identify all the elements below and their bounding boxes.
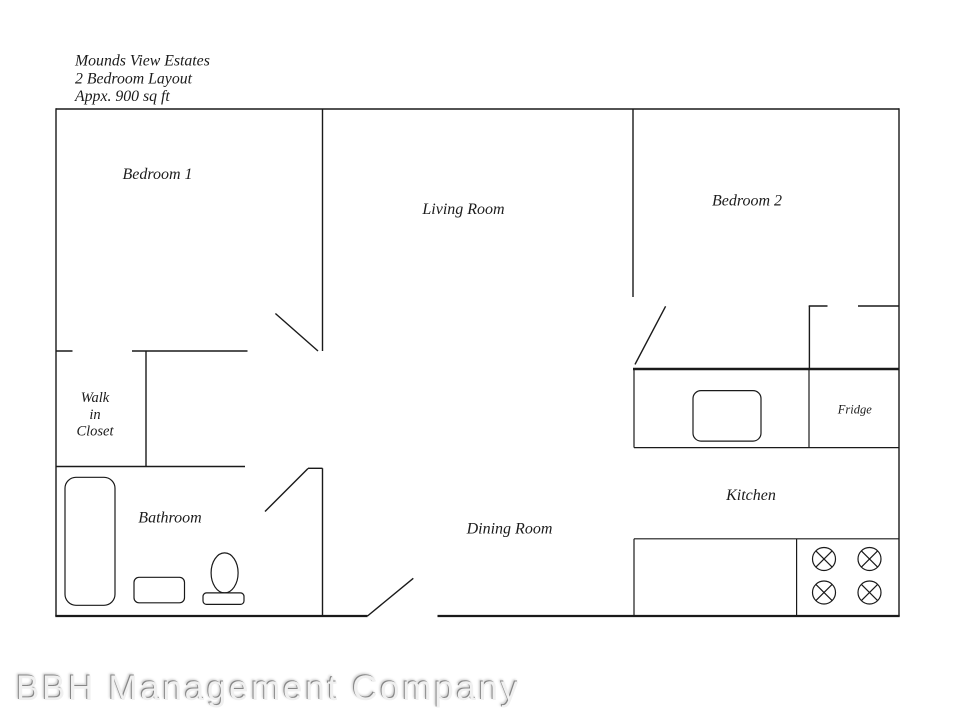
svg-text:Walk: Walk <box>81 390 110 406</box>
svg-text:Appx. 900 sq ft: Appx. 900 sq ft <box>74 88 170 105</box>
svg-text:Kitchen: Kitchen <box>725 487 776 504</box>
svg-text:Mounds View Estates: Mounds View Estates <box>74 53 210 70</box>
svg-text:2 Bedroom Layout: 2 Bedroom Layout <box>75 71 193 88</box>
svg-text:Bedroom 1: Bedroom 1 <box>122 166 192 183</box>
svg-text:Bedroom 2: Bedroom 2 <box>712 193 782 210</box>
svg-text:Living Room: Living Room <box>421 201 504 218</box>
svg-text:Fridge: Fridge <box>837 403 872 417</box>
svg-text:Dining Room: Dining Room <box>466 521 553 538</box>
svg-text:in: in <box>89 407 100 423</box>
svg-text:Closet: Closet <box>76 424 114 440</box>
svg-text:Bathroom: Bathroom <box>138 510 201 527</box>
